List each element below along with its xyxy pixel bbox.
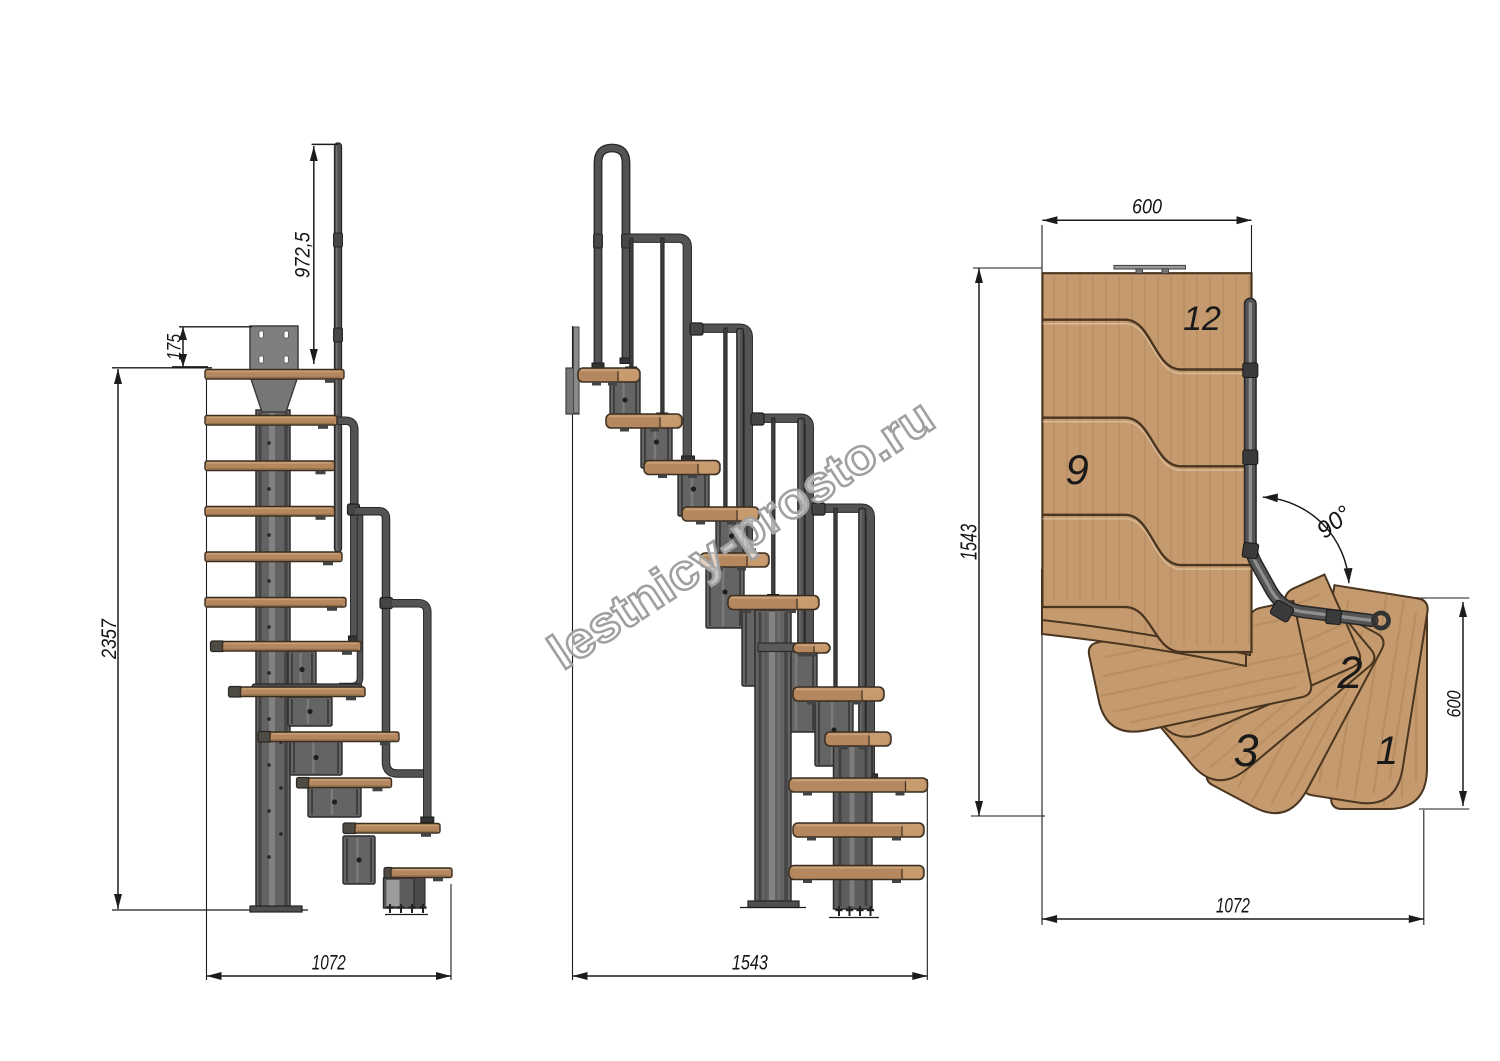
svg-text:1: 1 [1376,729,1398,773]
svg-text:3: 3 [1233,725,1258,776]
svg-text:2: 2 [1336,647,1362,698]
svg-text:1543: 1543 [956,524,982,560]
svg-text:1072: 1072 [312,952,346,975]
svg-text:1072: 1072 [1216,895,1250,918]
svg-text:9: 9 [1065,446,1088,493]
svg-text:600: 600 [1445,690,1466,717]
svg-text:1543: 1543 [732,952,768,975]
svg-text:972,5: 972,5 [292,232,315,278]
svg-text:600: 600 [1132,196,1162,219]
svg-text:175: 175 [165,334,186,360]
svg-text:2357: 2357 [98,618,121,660]
svg-text:12: 12 [1183,300,1221,338]
